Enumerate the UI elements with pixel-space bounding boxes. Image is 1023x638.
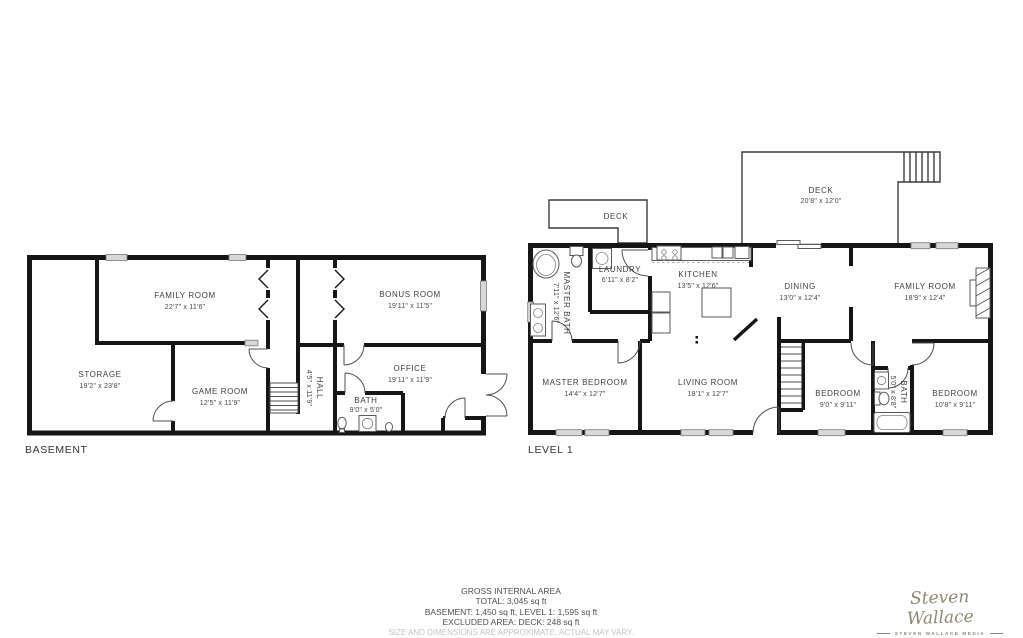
basement-office-label: OFFICE [394,364,427,373]
level1-family-room-label: FAMILY ROOM [894,282,955,291]
basement-hall-dims: 4'5" x 11'9" [305,370,312,407]
basement-hall-label: HALL [315,377,324,399]
master-bath-dims: 7'11" x 12'6" [552,283,559,324]
level1-floor-label: LEVEL 1 [528,444,573,456]
basement-floor-label: BASEMENT [25,444,88,456]
summary-title: GROSS INTERNAL AREA [311,586,711,596]
level1-family-room-dims: 18'9" x 12'4" [905,295,946,302]
deck-label: DECK [809,186,834,195]
photographer-logo: Steven Wallace STEVEN WALLACE MEDIA [875,588,1005,636]
dining-label: DINING [784,282,816,291]
logo-subtitle: STEVEN WALLACE MEDIA [875,631,1005,636]
master-bath-label: MASTER BATH [562,272,571,335]
bedroom2-label: BEDROOM [932,389,978,398]
sliding-door [776,241,821,249]
level1-bath-dims: 5'0" x 8'8" [889,376,896,409]
living-room-label: LIVING ROOM [678,378,738,387]
area-summary: GROSS INTERNAL AREA TOTAL: 3,045 sq ft B… [311,586,711,638]
master-bedroom-dims: 14'4" x 12'7" [565,391,606,398]
floorplan-page: FAMILY ROOM 22'7" x 11'6" STORAGE 19'2" … [0,0,1023,638]
basement-game-room-label: GAME ROOM [192,387,248,396]
summary-excluded: EXCLUDED AREA: DECK: 248 sq ft [311,617,711,627]
logo-rule-left [877,633,890,634]
basement-bath-label: BATH [354,396,377,405]
kitchen-fixtures [652,246,751,344]
summary-total: TOTAL: 3,045 sq ft [311,596,711,606]
basement-storage-dims: 19'2" x 23'8" [80,383,121,390]
bedroom2-dims: 10'8" x 9'11" [935,402,976,409]
dining-dims: 13'0" x 12'4" [780,295,821,302]
basement-stairs [270,383,298,413]
deck-stairs [904,152,934,182]
basement-storage-label: STORAGE [78,370,121,379]
basement-opening-symbols [259,270,344,318]
basement-doors [153,345,507,421]
logo-rule-right [990,633,1003,634]
kitchen-label: KITCHEN [678,270,717,279]
basement-family-room-dims: 22'7" x 11'6" [165,304,206,311]
laundry-label: LAUNDRY [599,265,641,274]
basement-bath-dims: 9'0" x 5'0" [350,407,383,414]
basement-office-dims: 19'11" x 11'9" [388,377,432,384]
deck-dims: 20'8" x 12'0" [801,198,842,205]
basement-bonus-room-dims: 19'11" x 11'5" [388,303,432,310]
laundry-dims: 6'11" x 8'2" [602,277,639,284]
logo-script-text: Steven Wallace [874,586,1005,631]
basement-plan: FAMILY ROOM 22'7" x 11'6" STORAGE 19'2" … [25,255,507,457]
level1-interior-walls [528,245,993,435]
level1-bath-label: BATH [899,380,908,403]
level1-stairs [781,343,802,408]
deck-small-label: DECK [604,212,629,221]
summary-disclaimer: SIZE AND DIMENSIONS ARE APPROXIMATE, ACT… [311,628,711,638]
level1-plan: DECK DECK 20'8" x 12'0" MASTER BATH 7'11… [528,152,993,456]
logo-subtitle-text: STEVEN WALLACE MEDIA [895,631,985,636]
living-room-dims: 18'1" x 12'7" [688,391,729,398]
master-bedroom-label: MASTER BEDROOM [542,378,627,387]
level1-decks [549,152,940,243]
basement-bath-fixtures [338,416,393,433]
kitchen-dims: 13'5" x 12'6" [678,283,719,290]
floorplan-drawing: FAMILY ROOM 22'7" x 11'6" STORAGE 19'2" … [0,0,1023,638]
bedroom1-dims: 9'0" x 9'11" [820,402,857,409]
basement-game-room-dims: 12'5" x 11'9" [200,400,241,407]
fireplace [970,268,990,318]
basement-family-room-label: FAMILY ROOM [154,291,215,300]
summary-levels: BASEMENT: 1,450 sq ft, LEVEL 1: 1,595 sq… [311,607,711,617]
bedroom1-label: BEDROOM [815,389,861,398]
basement-bonus-room-label: BONUS ROOM [379,290,441,299]
